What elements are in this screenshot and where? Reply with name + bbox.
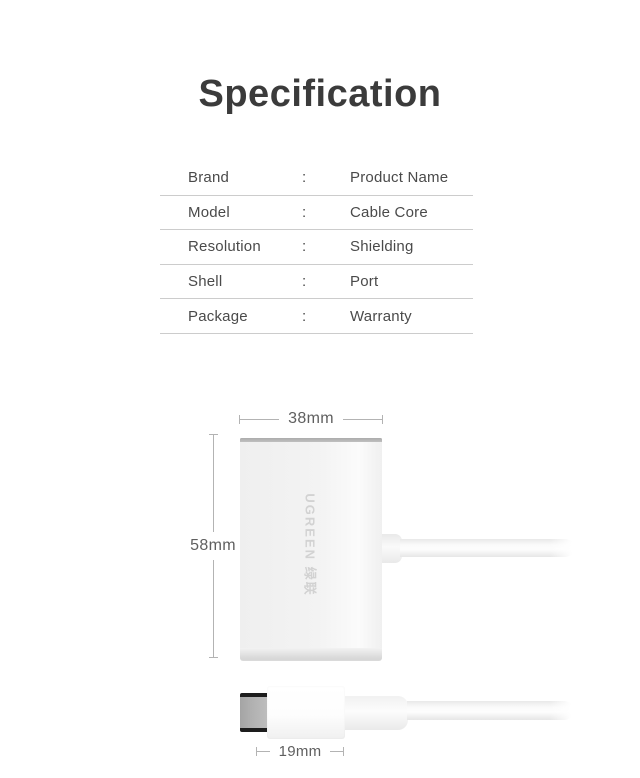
spec-value: Port <box>350 273 473 290</box>
spec-label: Shell <box>160 273 302 290</box>
plug-width-dimension-label: 19mm <box>270 743 331 760</box>
height-dimension-label: 58mm <box>190 532 236 560</box>
adapter-body: UGREEN 绿联 <box>240 438 382 661</box>
dimension-line <box>330 751 343 752</box>
spec-colon: : <box>302 308 350 325</box>
spec-colon: : <box>302 238 350 255</box>
spec-value: Warranty <box>350 308 473 325</box>
table-row: Brand : Product Name <box>160 161 473 196</box>
spec-table: Brand : Product Name Model : Cable Core … <box>160 161 473 334</box>
cable-top <box>400 539 574 557</box>
spec-label: Brand <box>160 169 302 186</box>
dimension-line <box>213 435 214 532</box>
table-row: Shell : Port <box>160 265 473 300</box>
spec-label: Resolution <box>160 238 302 255</box>
spec-colon: : <box>302 169 350 186</box>
spec-label: Model <box>160 204 302 221</box>
adapter-face: UGREEN 绿联 <box>240 442 382 648</box>
usbc-housing <box>267 686 345 739</box>
adapter-bottom-edge <box>240 648 382 661</box>
table-row: Package : Warranty <box>160 299 473 334</box>
dimension-tick <box>382 415 383 424</box>
ugreen-logo-text: UGREEN 绿联 <box>302 493 321 596</box>
spec-colon: : <box>302 273 350 290</box>
plug-width-dimension: 19mm <box>256 743 344 759</box>
cable-strain-relief <box>382 534 402 563</box>
tip-edge <box>240 728 267 732</box>
page-title: Specification <box>0 74 640 114</box>
width-dimension-label: 38mm <box>279 410 343 428</box>
table-row: Resolution : Shielding <box>160 230 473 265</box>
spec-value: Shielding <box>350 238 473 255</box>
dimension-line <box>240 419 279 420</box>
table-row: Model : Cable Core <box>160 196 473 231</box>
dimension-tick <box>343 747 344 756</box>
product-spec-image: Specification Brand : Product Name Model… <box>0 0 640 778</box>
tip-metal <box>240 697 267 728</box>
dimension-line <box>257 751 270 752</box>
dimension-tick <box>209 657 218 658</box>
usbc-boot <box>345 696 408 730</box>
spec-label: Package <box>160 308 302 325</box>
dimension-line <box>343 419 382 420</box>
cable-bottom <box>407 701 573 720</box>
spec-value: Product Name <box>350 169 473 186</box>
height-dimension: 58mm <box>188 434 238 658</box>
width-dimension: 38mm <box>239 411 383 427</box>
spec-value: Cable Core <box>350 204 473 221</box>
spec-colon: : <box>302 204 350 221</box>
dimension-line <box>213 560 214 657</box>
usbc-metal-tip <box>240 693 267 732</box>
